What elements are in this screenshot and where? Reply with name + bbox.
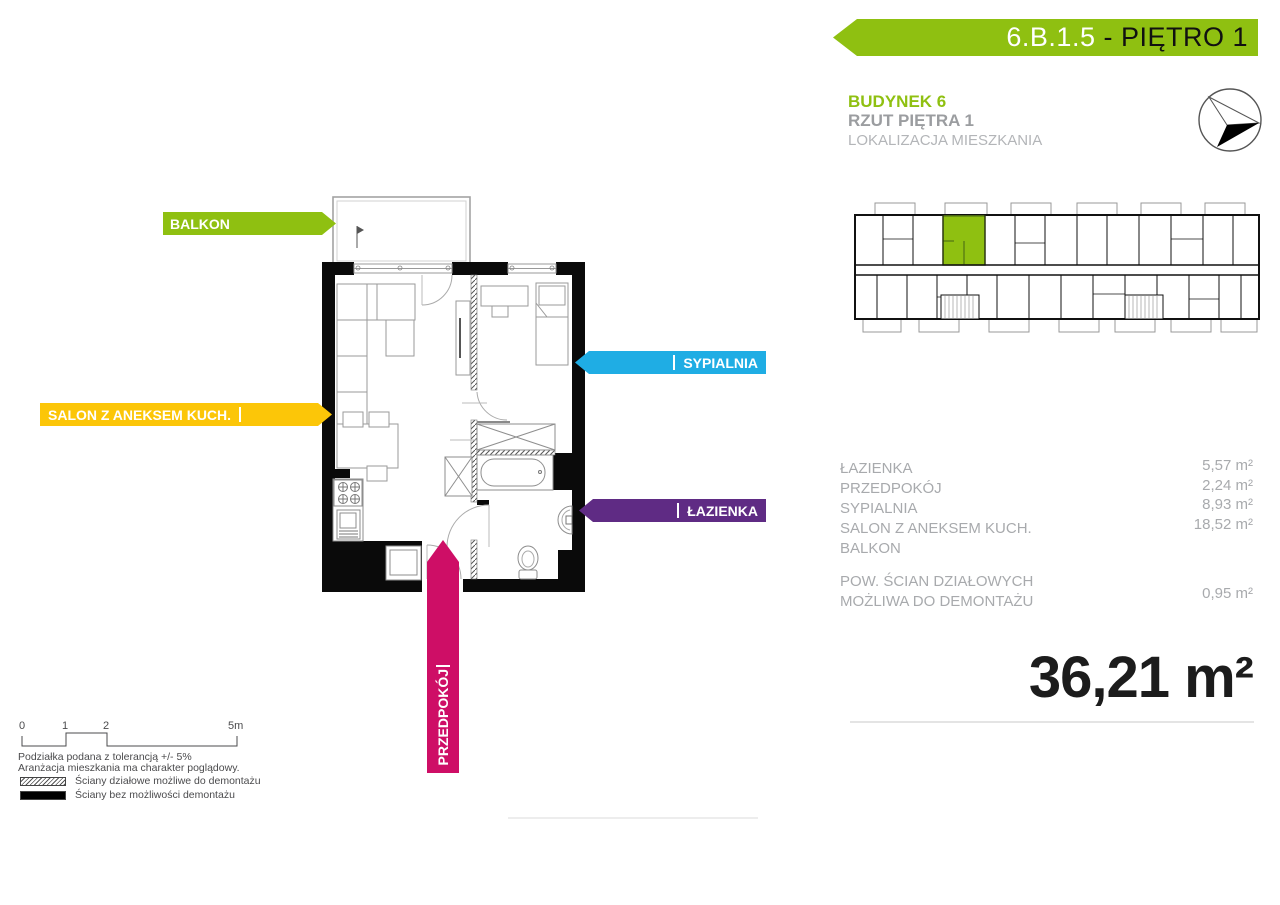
label-przedpokoj-text: PRZEDPOKÓJ xyxy=(435,669,451,765)
compass-icon xyxy=(1196,86,1264,154)
room-area-list: 5,57 m² 2,24 m² 8,93 m² 18,52 m² xyxy=(1000,456,1253,534)
unit-id: 6.B.1.5 xyxy=(1006,22,1095,53)
partition-walls-area: 0,95 m² xyxy=(1000,585,1253,602)
label-sypialnia: SYPIALNIA xyxy=(575,351,766,374)
balcony-outline xyxy=(333,197,470,265)
room-area: 18,52 m² xyxy=(1000,515,1253,535)
label-sypialnia-text: SYPIALNIA xyxy=(683,355,758,371)
building-floor-overview xyxy=(853,199,1263,339)
label-salon: SALON Z ANEKSEM KUCH. xyxy=(40,403,332,426)
label-balkon: BALKON xyxy=(163,212,336,235)
apartment-floor-plan xyxy=(0,0,800,905)
unit-banner: 6.B.1.5 - PIĘTRO 1 xyxy=(833,19,1258,56)
floor-suffix: - PIĘTRO 1 xyxy=(1095,22,1248,53)
label-lazienka: ŁAZIENKA xyxy=(579,499,766,522)
location-title: LOKALIZACJA MIESZKANIA xyxy=(848,131,1042,150)
apartment-card-page: 6.B.1.5 - PIĘTRO 1 BUDYNEK 6 RZUT PIĘTRA… xyxy=(0,0,1280,905)
room-name: BALKON xyxy=(840,539,1032,559)
building-title: BUDYNEK 6 xyxy=(848,92,1042,111)
living-room-furniture xyxy=(337,284,470,481)
room-area: 2,24 m² xyxy=(1000,476,1253,496)
label-salon-text: SALON Z ANEKSEM KUCH. xyxy=(48,407,231,423)
total-area: 36,21 m² xyxy=(853,644,1253,711)
bathroom-fixtures xyxy=(445,424,572,579)
label-balkon-text: BALKON xyxy=(170,216,230,232)
room-area: 8,93 m² xyxy=(1000,495,1253,515)
room-area: 5,57 m² xyxy=(1000,456,1253,476)
label-przedpokoj: PRZEDPOKÓJ xyxy=(427,540,459,773)
floorplan-title: RZUT PIĘTRA 1 xyxy=(848,111,1042,130)
scale-bar xyxy=(22,733,237,746)
divider-line xyxy=(850,721,1254,723)
header-block: BUDYNEK 6 RZUT PIĘTRA 1 LOKALIZACJA MIES… xyxy=(848,92,1042,150)
label-lazienka-text: ŁAZIENKA xyxy=(687,503,758,519)
bedroom-furniture xyxy=(481,283,568,365)
